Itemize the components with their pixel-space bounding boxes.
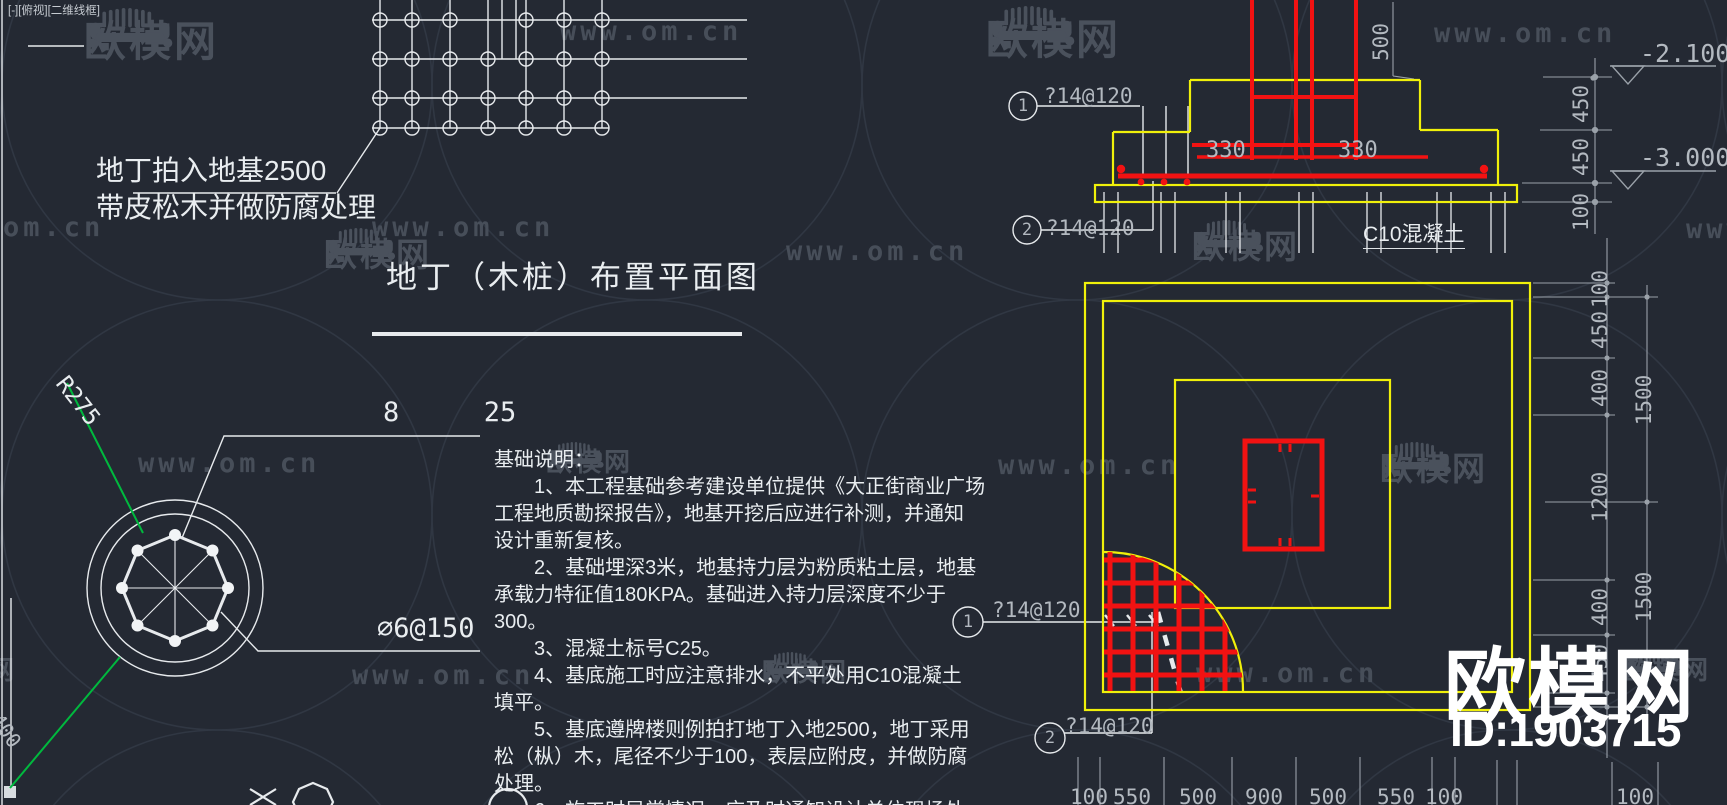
note-line: 2、基础埋深3米，地基持力层为粉质粘土层，地基 (494, 555, 999, 582)
plan-callout-2-label: ?14@120 (1065, 715, 1154, 737)
c10-concrete-label: C10混凝土 (1363, 224, 1465, 249)
note-line: 4、基底施工时应注意排水，不平处用C10混凝土 (494, 663, 999, 690)
note-line: 3、混凝土标号C25。 (494, 636, 999, 663)
plan-right-dim-outer: 1500 (1633, 375, 1655, 426)
viewport-label[interactable]: [-][俯视][二维线框] (8, 5, 100, 17)
elevation-top: -2.100 (1640, 41, 1727, 67)
plan-bottom-dim: 100 (1070, 786, 1108, 805)
plan-title: 地丁（木桩）布置平面图 (386, 262, 760, 295)
plan-right-dim: 100 (1589, 270, 1611, 308)
section-dim-100: 100 (1570, 193, 1592, 231)
elevation-bottom: -3.000 (1640, 145, 1727, 171)
section-callout-1-label: ?14@120 (1044, 85, 1133, 107)
dim-330-left: 330 (1206, 139, 1246, 162)
pile-circles (373, 13, 609, 135)
plan-bottom-dim: 550 (1377, 786, 1415, 805)
site-id: ID:1903715 (1450, 703, 1680, 757)
note-line: 1、本工程基础参考建设单位提供《大正街商业广场 (494, 474, 999, 501)
plan-callout-2-number: 2 (1045, 730, 1055, 748)
pile-note-line1: 地丁拍入地基2500 (96, 156, 326, 185)
c10-bed-slab (1095, 185, 1517, 202)
plan-column-stirrup (1245, 441, 1322, 549)
note-line: 处理。 (494, 771, 999, 798)
bottom-partial-symbols (250, 783, 527, 805)
plan-bottom-dim-extra: 100 (1616, 786, 1654, 805)
elevation-triangle-bottom (1612, 171, 1644, 189)
plan-bottom-dim: 550 (1113, 786, 1151, 805)
viewport-border (2, 0, 11, 805)
plan-right-dim-outer: 1500 (1633, 572, 1655, 623)
note-line: 填平。 (494, 690, 999, 717)
plan-right-dim: 400 (1589, 369, 1611, 407)
dim-500: 500 (1370, 23, 1392, 61)
plan-right-dim: 1200 (1589, 472, 1611, 523)
section-dim-450a: 450 (1570, 85, 1592, 123)
plan-bottom-dim: 900 (1245, 786, 1283, 805)
plan-callout-1-label: ?14@120 (992, 599, 1081, 621)
plan-bottom-dim: 500 (1309, 786, 1347, 805)
pile-note-line2: 带皮松木并做防腐处理 (96, 193, 376, 222)
section-rebar (1117, 0, 1488, 185)
plan-bottom-dim: 500 (1179, 786, 1217, 805)
section-callout-1-number: 1 (1018, 98, 1028, 116)
note-line: 6、施工时异常情况，应及时通知设计单位现场处理。 (494, 798, 999, 805)
plan-right-dim: 450 (1589, 311, 1611, 349)
tie-label: ∅6@150 (377, 615, 475, 643)
autocad-viewport: 欧模网 欧模网 欧模网 欧模网 欧模网 欧模网 欧模网 欧模网 欧模网 www.… (0, 0, 1727, 805)
foundation-notes: 基础说明： 1、本工程基础参考建设单位提供《大正街商业广场 工程地质勘探报告》，… (494, 447, 999, 805)
main-bar-label: 8 25 (383, 399, 516, 427)
section-dim-450b: 450 (1570, 138, 1592, 176)
plan-callout-1-number: 1 (963, 614, 973, 632)
note-line: 工程地质勘探报告》，地基开挖后应进行补测，并通知 (494, 501, 999, 528)
note-line: 设计重新复核。 (494, 528, 999, 555)
note-line: 5、基底遵牌楼则例拍打地丁入地2500，地丁采用 (494, 717, 999, 744)
note-line: 松（枞）木，尾径不少于100，表层应附皮，并做防腐 (494, 744, 999, 771)
note-line: 承载力特征值180KPA。基础进入持力层深度不少于300。 (494, 582, 999, 636)
section-callout-2-number: 2 (1022, 222, 1032, 240)
dim-330-right: 330 (1338, 139, 1378, 162)
plan-bottom-dim: 100 (1425, 786, 1463, 805)
note-line: 基础说明： (494, 447, 999, 474)
section-callout-2-label: ?14@120 (1046, 217, 1135, 239)
elevation-triangle-top (1612, 66, 1644, 84)
